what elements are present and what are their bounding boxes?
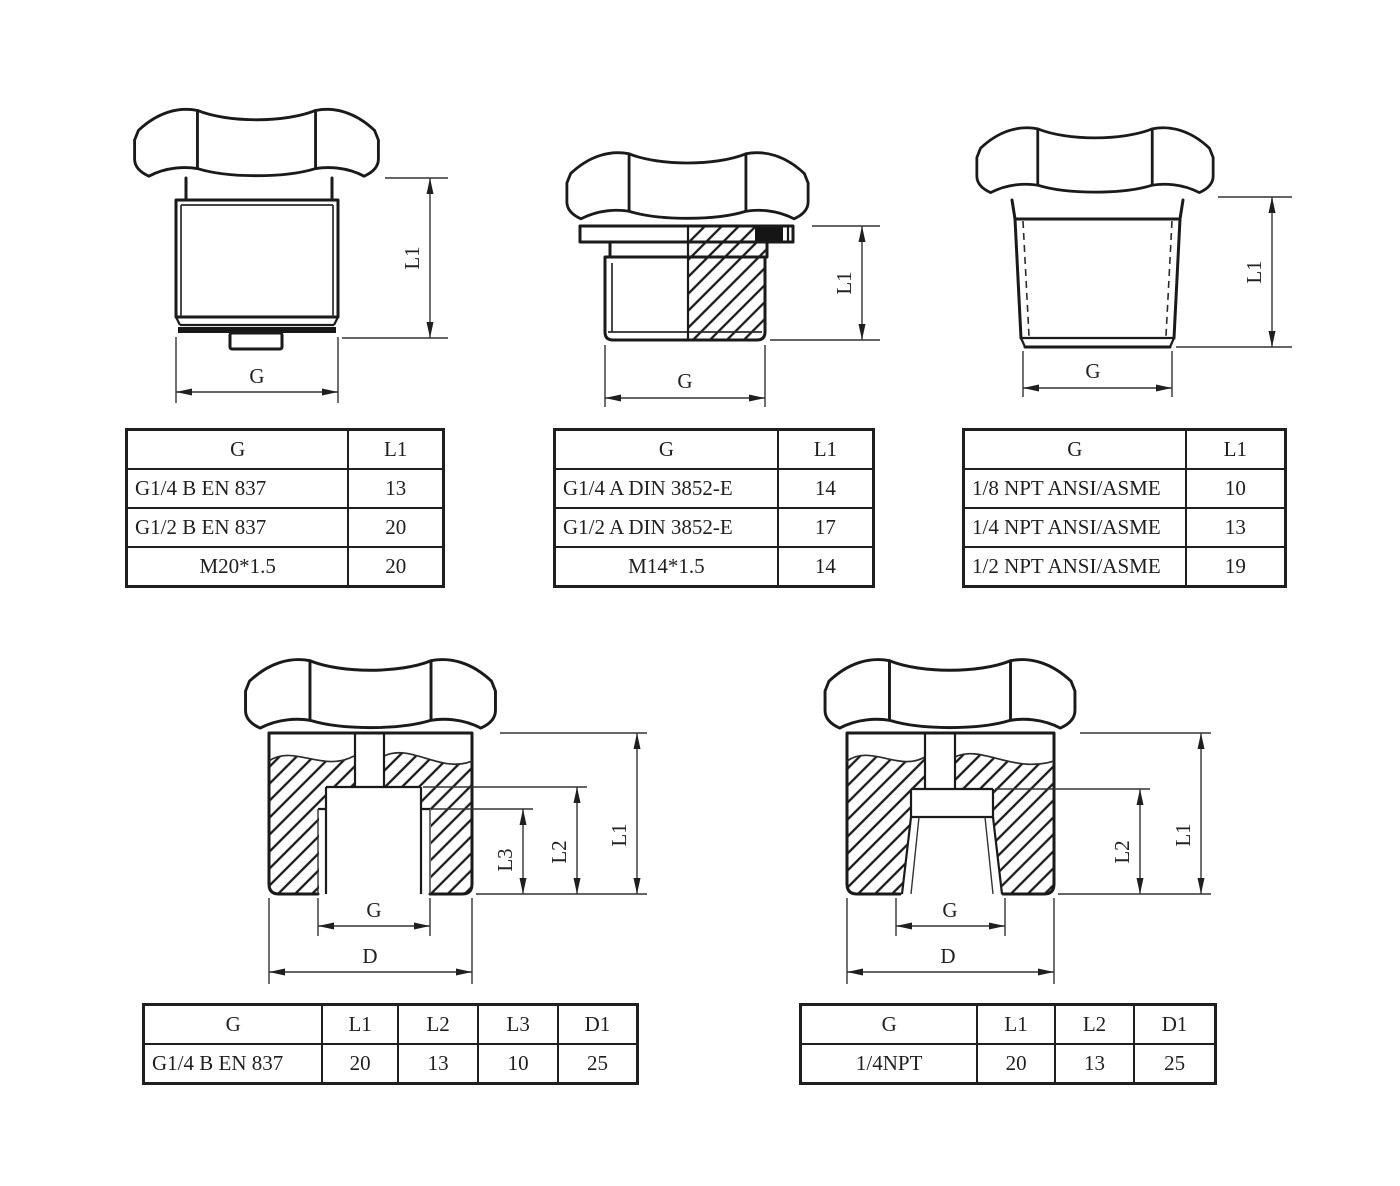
dim-label-l1: L1 <box>832 271 856 294</box>
dim-label-g: G <box>1085 359 1100 383</box>
table-cell: G1/2 B EN 837 <box>127 508 349 547</box>
dim-label-l2: L2 <box>547 840 571 863</box>
dimension-g: G <box>605 345 765 407</box>
table-cell: 1/4 NPT ANSI/ASME <box>964 508 1186 547</box>
table-cell: 1/8 NPT ANSI/ASME <box>964 469 1186 508</box>
spec-table-npt-male: G L1 1/8 NPT ANSI/ASME 10 1/4 NPT ANSI/A… <box>962 428 1287 588</box>
column-header: L1 <box>348 430 443 470</box>
dim-label-g: G <box>366 898 381 922</box>
column-header: D1 <box>558 1005 638 1045</box>
column-header: L2 <box>1055 1005 1134 1045</box>
dimension-l1: L1 <box>342 178 448 338</box>
dimension-g: G <box>176 337 338 403</box>
column-header: G <box>127 430 349 470</box>
table-cell: 14 <box>778 469 874 508</box>
table-cell: 10 <box>1186 469 1286 508</box>
spec-table-din3852-male: G L1 G1/4 A DIN 3852-E 14 G1/2 A DIN 385… <box>553 428 875 588</box>
section-hatch <box>848 754 1053 893</box>
table-cell: M20*1.5 <box>127 547 349 587</box>
table-cell: 1/4NPT <box>801 1044 978 1084</box>
dim-label-d: D <box>362 944 377 968</box>
column-header: G <box>555 430 778 470</box>
dim-label-l2: L2 <box>1110 840 1134 863</box>
hex-head <box>135 109 379 176</box>
dim-label-l1: L1 <box>400 246 424 269</box>
dim-label-g: G <box>249 364 264 388</box>
dim-label-g: G <box>677 369 692 393</box>
column-header: L1 <box>322 1005 398 1045</box>
table-cell: 20 <box>322 1044 398 1084</box>
seal-ring <box>755 228 783 241</box>
column-header: L1 <box>1186 430 1286 470</box>
table-cell: G1/4 A DIN 3852-E <box>555 469 778 508</box>
table-cell: G1/2 A DIN 3852-E <box>555 508 778 547</box>
dim-label-d: D <box>940 944 955 968</box>
table-cell: 13 <box>1055 1044 1134 1084</box>
dim-label-l1: L1 <box>1171 823 1195 846</box>
table-cell: 1/2 NPT ANSI/ASME <box>964 547 1186 587</box>
hex-head <box>567 153 808 219</box>
dim-label-l1: L1 <box>1242 260 1266 283</box>
dim-label-l1: L1 <box>607 823 631 846</box>
table-cell: 17 <box>778 508 874 547</box>
column-header: L1 <box>977 1005 1055 1045</box>
table-cell: 25 <box>558 1044 638 1084</box>
table-cell: 13 <box>348 469 443 508</box>
dimension-g: G <box>1023 351 1172 397</box>
dimension-g: G <box>896 898 1005 936</box>
dimension-g: G <box>318 898 430 936</box>
table-cell: 19 <box>1186 547 1286 587</box>
spec-table-npt-female: G L1 L2 D1 1/4NPT 20 13 25 <box>799 1003 1217 1085</box>
dim-label-l3: L3 <box>493 848 517 871</box>
dimension-l1: L1 <box>1176 197 1292 347</box>
table-cell: G1/4 B EN 837 <box>127 469 349 508</box>
table-cell: 10 <box>478 1044 558 1084</box>
drawing-npt-female: G D L2 L1 <box>815 640 1225 1015</box>
thread-body <box>176 178 338 349</box>
drawing-en837-male: L1 G <box>120 85 465 420</box>
spec-table-en837-female: G L1 L2 L3 D1 G1/4 B EN 837 20 13 10 25 <box>142 1003 639 1085</box>
table-cell: 25 <box>1134 1044 1215 1084</box>
table-cell: 13 <box>1186 508 1286 547</box>
dim-label-g: G <box>942 898 957 922</box>
drawing-npt-male: L1 G <box>960 105 1300 400</box>
column-header: G <box>801 1005 978 1045</box>
hex-head <box>825 660 1075 729</box>
spec-table-en837-male: G L1 G1/4 B EN 837 13 G1/2 B EN 837 20 M… <box>125 428 445 588</box>
drawing-sheet: L1 G <box>0 0 1400 1186</box>
drawing-en837-female: G D L3 L2 L1 <box>235 640 655 1015</box>
hex-head <box>246 660 496 729</box>
column-header: L1 <box>778 430 874 470</box>
table-cell: 20 <box>977 1044 1055 1084</box>
table-cell: 13 <box>398 1044 479 1084</box>
dimension-l1: L1 <box>1058 733 1211 894</box>
table-cell: 20 <box>348 547 443 587</box>
table-cell: M14*1.5 <box>555 547 778 587</box>
table-cell: G1/4 B EN 837 <box>144 1044 323 1084</box>
column-header: G <box>144 1005 323 1045</box>
drawing-din3852-male: L1 G <box>550 135 895 415</box>
table-cell: 20 <box>348 508 443 547</box>
section-hatch <box>270 753 471 893</box>
hex-head <box>977 128 1213 193</box>
taper-thread-body <box>1012 200 1183 347</box>
column-header: L2 <box>398 1005 479 1045</box>
table-cell: 14 <box>778 547 874 587</box>
column-header: D1 <box>1134 1005 1215 1045</box>
column-header: L3 <box>478 1005 558 1045</box>
column-header: G <box>964 430 1186 470</box>
